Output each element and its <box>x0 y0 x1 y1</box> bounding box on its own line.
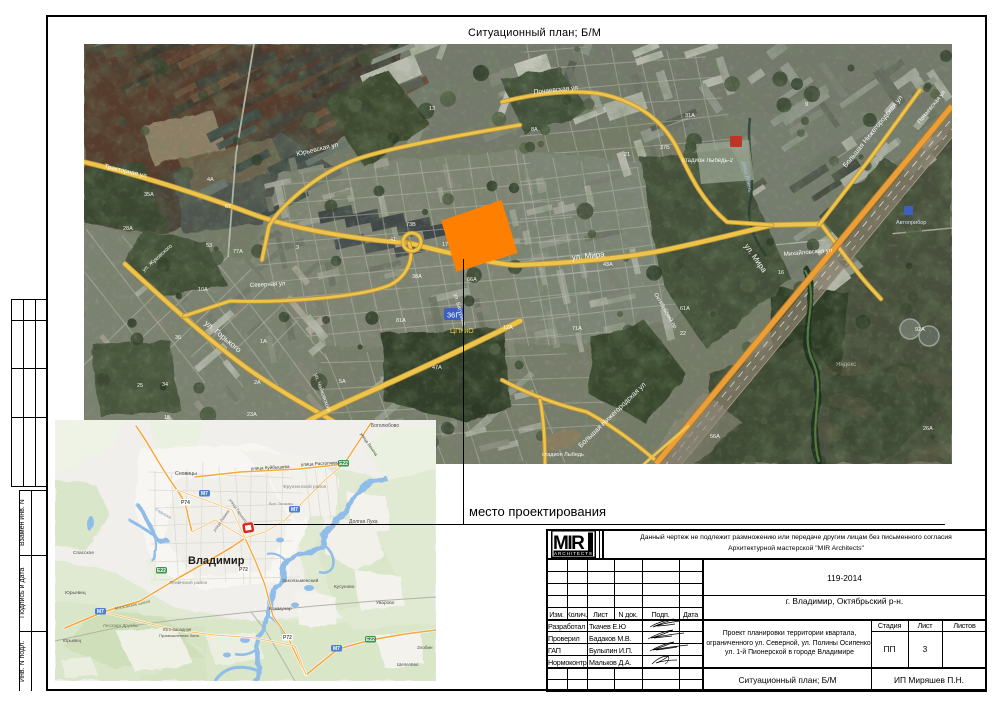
svg-text:28А: 28А <box>123 226 133 232</box>
svg-text:Фрунзенский район: Фрунзенский район <box>283 483 327 490</box>
svg-text:стадион Лыбедь-2: стадион Лыбедь-2 <box>682 158 734 164</box>
svg-text:М7: М7 <box>97 609 104 615</box>
svg-text:5А: 5А <box>339 379 346 385</box>
svg-text:Сновицы: Сновицы <box>175 471 197 477</box>
svg-text:43А: 43А <box>603 262 613 268</box>
svg-text:ARCHITECTS: ARCHITECTS <box>554 551 592 556</box>
svg-text:92А: 92А <box>915 327 925 333</box>
svg-text:Е22: Е22 <box>366 637 375 643</box>
svg-text:34: 34 <box>162 382 168 388</box>
svg-text:1А: 1А <box>260 339 267 345</box>
svg-text:53: 53 <box>206 243 212 249</box>
svg-text:23А: 23А <box>247 412 257 418</box>
svg-text:Коммунар: Коммунар <box>269 606 292 612</box>
svg-text:Промышленная Зона: Промышленная Зона <box>159 633 199 638</box>
svg-text:Шепелёво: Шепелёво <box>397 662 419 667</box>
svg-text:Вол. Тючково: Вол. Тючково <box>269 502 293 506</box>
svg-text:9: 9 <box>805 102 808 108</box>
svg-text:Заклязьменский: Заклязьменский <box>282 577 319 584</box>
svg-text:Р74: Р74 <box>181 500 190 506</box>
svg-text:36: 36 <box>175 335 181 341</box>
svg-text:2А: 2А <box>254 380 261 386</box>
svg-text:Боголюбово: Боголюбово <box>371 423 399 429</box>
svg-text:38А: 38А <box>412 274 422 280</box>
svg-text:Владимир: Владимир <box>188 555 245 567</box>
svg-text:41: 41 <box>390 237 396 243</box>
svg-text:22: 22 <box>680 331 686 337</box>
svg-text:8А: 8А <box>531 127 538 133</box>
svg-text:81А: 81А <box>396 318 406 324</box>
svg-text:Ленинский район: Ленинский район <box>169 579 208 586</box>
svg-text:77А: 77А <box>233 249 243 255</box>
svg-text:13: 13 <box>429 106 435 112</box>
svg-text:4А: 4А <box>207 177 214 183</box>
svg-text:Р72: Р72 <box>283 635 292 641</box>
svg-text:Юрьевец: Юрьевец <box>63 638 82 643</box>
svg-text:Уварово: Уварово <box>376 600 395 606</box>
svg-text:10А: 10А <box>198 287 208 293</box>
svg-text:Лесопарк Дружбы: Лесопарк Дружбы <box>103 623 138 628</box>
svg-text:М7: М7 <box>201 491 208 497</box>
svg-text:47А: 47А <box>432 365 442 371</box>
svg-text:21: 21 <box>624 152 630 158</box>
svg-text:25: 25 <box>137 383 143 389</box>
svg-text:31А: 31А <box>685 113 695 119</box>
svg-text:Р72: Р72 <box>239 567 248 573</box>
svg-text:66А: 66А <box>467 277 477 283</box>
svg-text:стадион Лыбедь: стадион Лыбедь <box>542 452 584 458</box>
svg-text:Яндекс: Яндекс <box>836 362 856 368</box>
svg-text:М7: М7 <box>291 507 298 513</box>
svg-text:56А: 56А <box>710 434 720 440</box>
svg-text:Е22: Е22 <box>157 568 166 574</box>
svg-text:73В: 73В <box>406 222 416 228</box>
svg-text:37Б: 37Б <box>660 145 670 151</box>
svg-text:35А: 35А <box>144 192 154 198</box>
svg-text:12А: 12А <box>503 325 513 331</box>
svg-text:Юрьевец: Юрьевец <box>65 590 86 596</box>
svg-text:Спасское: Спасское <box>73 550 94 556</box>
svg-text:3: 3 <box>296 245 299 251</box>
svg-text:71А: 71А <box>572 326 582 332</box>
svg-text:16: 16 <box>778 270 784 276</box>
svg-text:Е22: Е22 <box>339 461 348 467</box>
svg-text:17: 17 <box>442 242 448 248</box>
svg-text:26А: 26А <box>923 426 933 432</box>
svg-text:Злобин: Злобин <box>417 645 433 650</box>
svg-text:61А: 61А <box>680 306 690 312</box>
svg-text:67: 67 <box>225 204 231 210</box>
svg-text:Кусуново: Кусуново <box>334 584 355 590</box>
svg-text:Автоприбор: Автоприбор <box>896 220 926 226</box>
svg-text:Юго-Западная: Юго-Западная <box>163 627 191 632</box>
svg-text:М7: М7 <box>333 646 340 652</box>
